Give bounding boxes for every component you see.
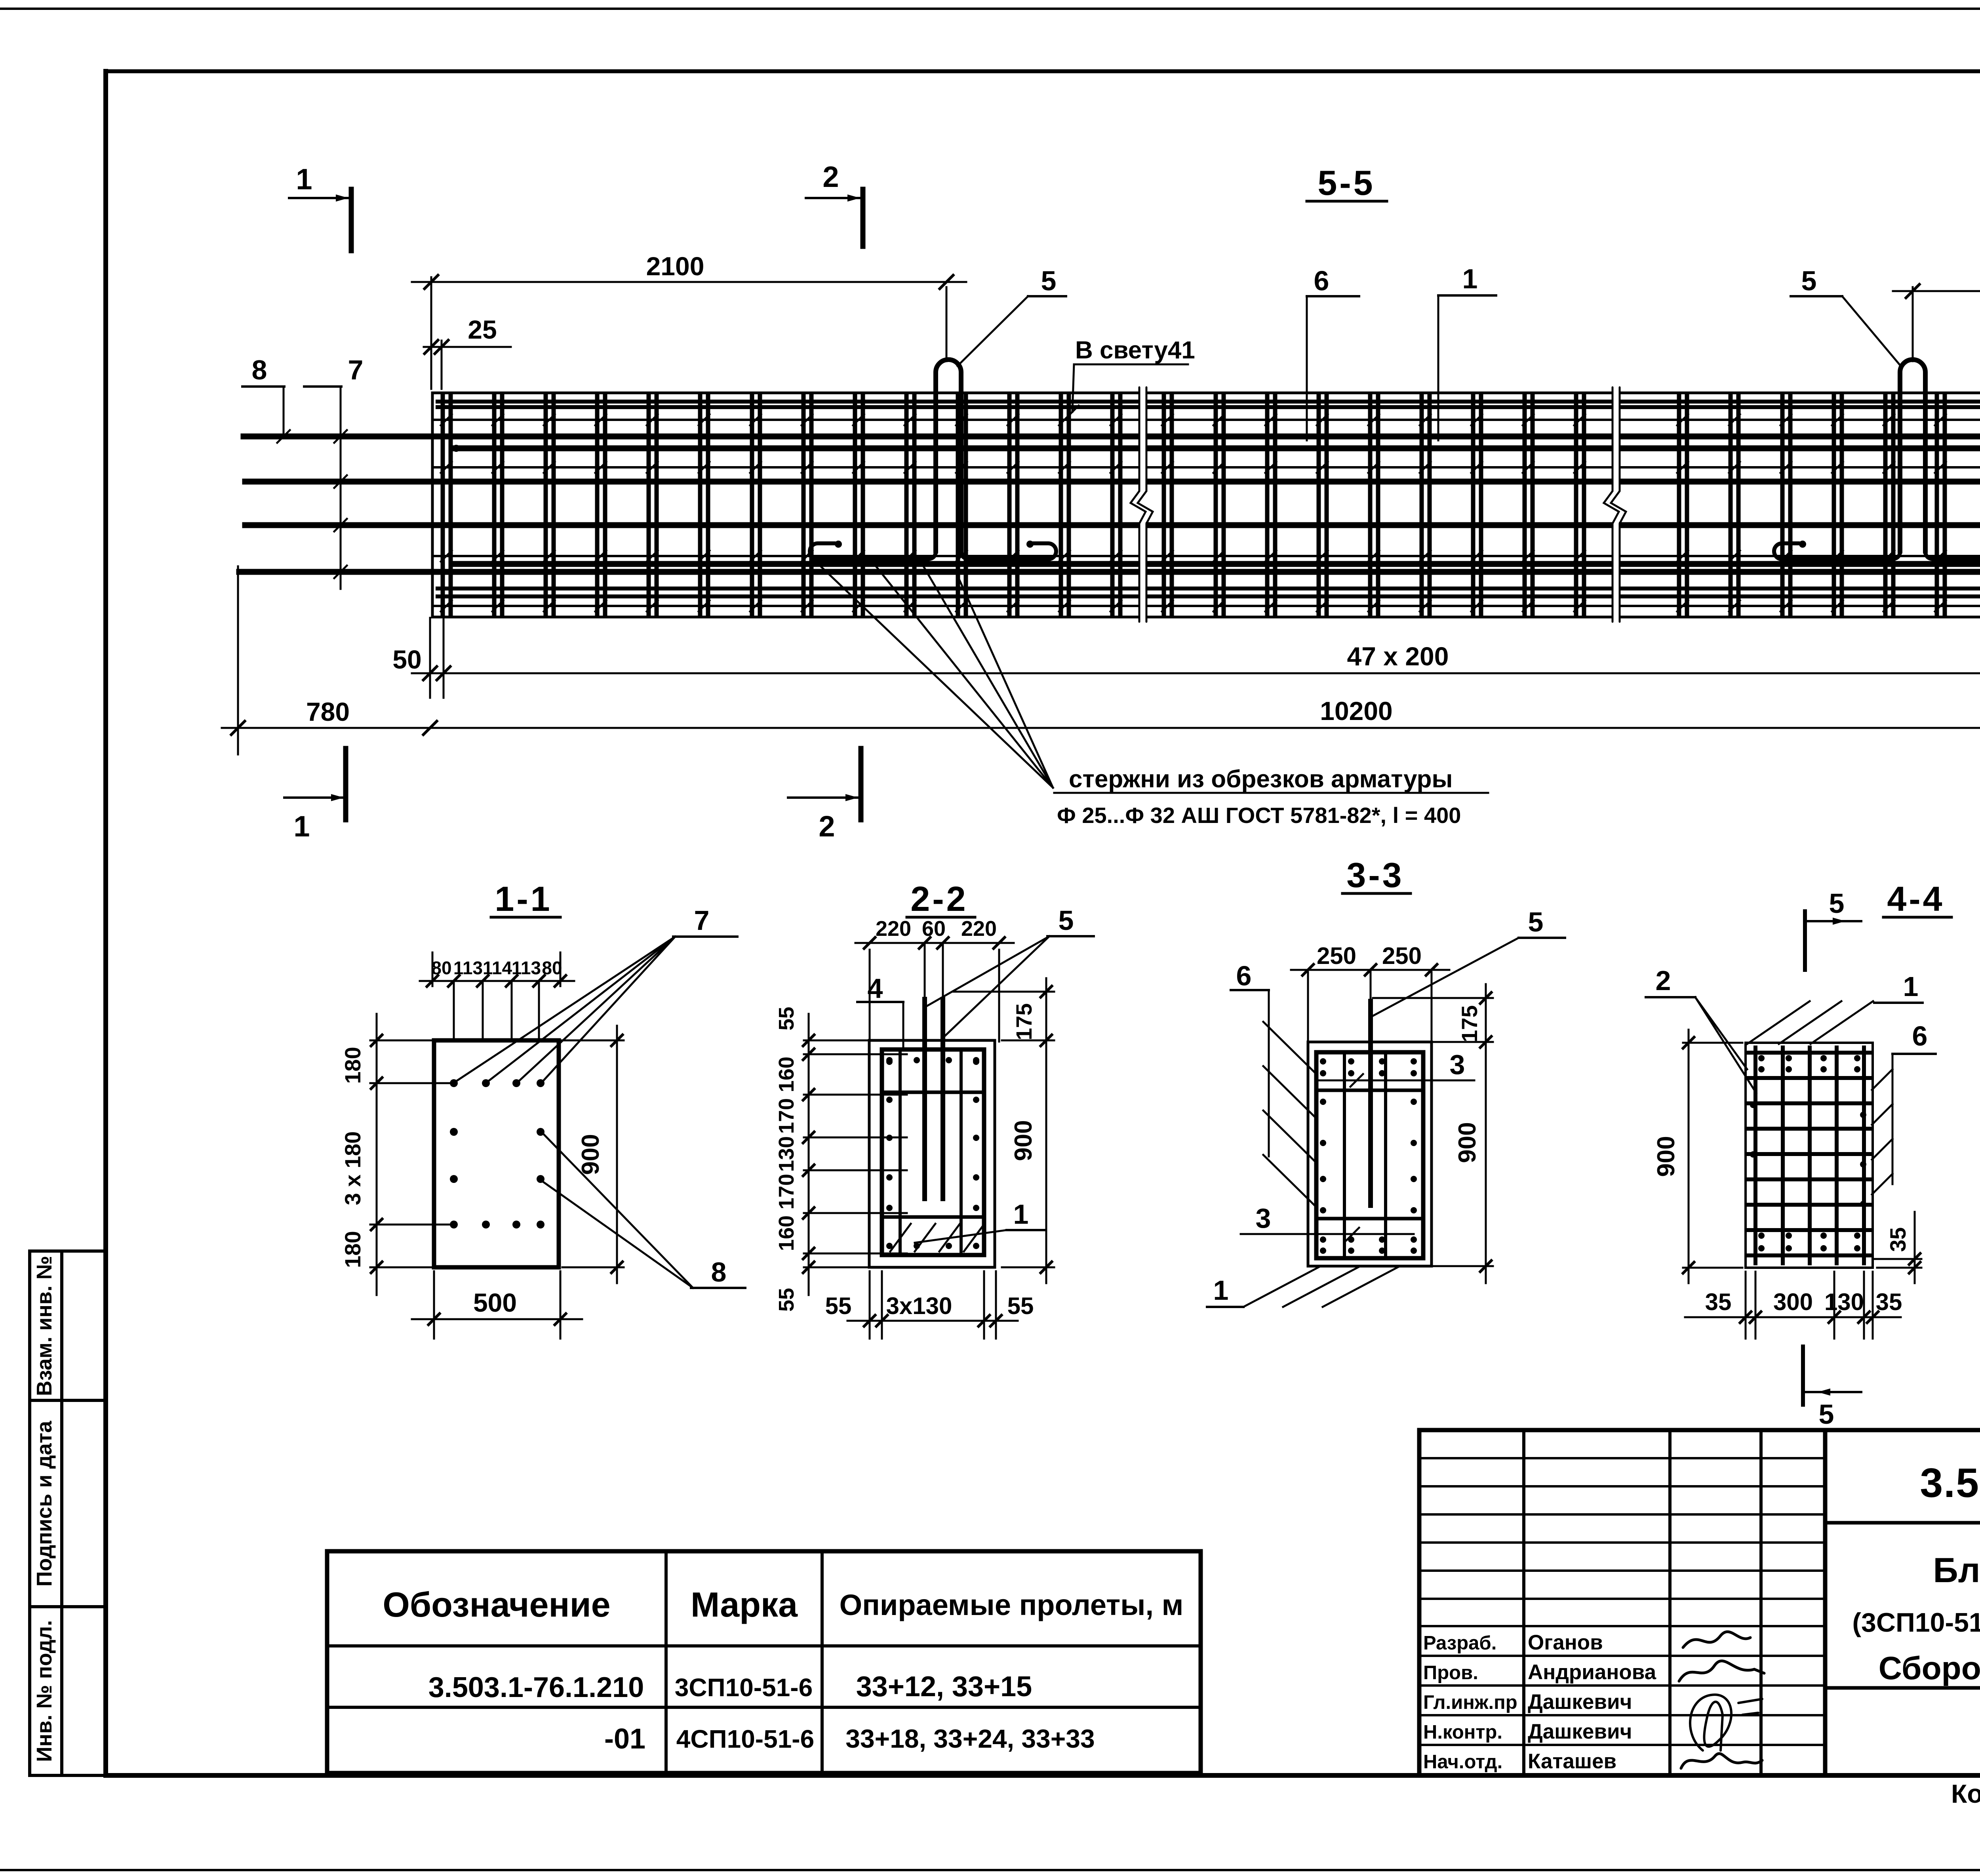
svg-text:220: 220 — [961, 917, 997, 941]
svg-text:(3СП10-51-6 и 4СП10-51-6): (3СП10-51-6 и 4СП10-51-6) — [1852, 1607, 1980, 1638]
svg-text:33+12, 33+15: 33+12, 33+15 — [856, 1671, 1032, 1703]
svg-text:Копировал: Копировал — [1951, 1779, 1980, 1808]
svg-text:5: 5 — [1829, 888, 1845, 919]
svg-text:3.503.1-76.1.210 СБ: 3.503.1-76.1.210 СБ — [1920, 1460, 1980, 1506]
svg-text:250: 250 — [1317, 943, 1356, 969]
svg-text:1: 1 — [293, 810, 310, 843]
svg-text:35: 35 — [1876, 1289, 1902, 1315]
svg-text:1: 1 — [1903, 971, 1919, 1002]
svg-text:Н.контр.: Н.контр. — [1423, 1722, 1502, 1743]
svg-text:900: 900 — [1010, 1120, 1037, 1161]
svg-text:130: 130 — [775, 1136, 798, 1172]
svg-text:Взам. инв. №: Взам. инв. № — [32, 1256, 56, 1396]
svg-text:6: 6 — [1314, 265, 1329, 296]
svg-text:Обозначение: Обозначение — [383, 1585, 610, 1624]
svg-text:113: 113 — [453, 958, 483, 978]
svg-text:Опираемые пролеты, м: Опираемые пролеты, м — [840, 1588, 1184, 1621]
svg-text:5: 5 — [1059, 905, 1074, 936]
svg-text:900: 900 — [1454, 1122, 1481, 1163]
svg-text:8: 8 — [711, 1257, 727, 1287]
svg-text:2: 2 — [822, 160, 839, 193]
svg-text:80: 80 — [431, 958, 451, 978]
svg-text:1: 1 — [296, 163, 312, 196]
svg-text:3-3: 3-3 — [1346, 855, 1404, 895]
svg-text:113: 113 — [512, 958, 541, 978]
svg-text:3.503.1-76.1.210: 3.503.1-76.1.210 — [428, 1672, 644, 1703]
svg-text:170: 170 — [775, 1174, 798, 1209]
svg-text:175: 175 — [1457, 1005, 1482, 1042]
svg-text:Разраб.: Разраб. — [1423, 1632, 1496, 1654]
svg-text:3: 3 — [1256, 1203, 1271, 1234]
svg-text:В свету41: В свету41 — [1075, 337, 1195, 364]
svg-text:2: 2 — [819, 810, 835, 843]
svg-text:25: 25 — [468, 315, 497, 344]
svg-text:130: 130 — [1824, 1289, 1864, 1315]
svg-text:170: 170 — [775, 1098, 798, 1134]
svg-text:Блок стойки: Блок стойки — [1933, 1550, 1980, 1590]
svg-text:1: 1 — [1013, 1199, 1029, 1230]
svg-text:220: 220 — [876, 917, 911, 941]
svg-text:180: 180 — [340, 1231, 365, 1268]
svg-text:5-5: 5-5 — [1317, 163, 1375, 202]
svg-text:3 x 180: 3 x 180 — [340, 1131, 365, 1206]
svg-text:Нач.отд.: Нач.отд. — [1423, 1751, 1502, 1773]
svg-text:55: 55 — [1007, 1293, 1034, 1319]
svg-text:900: 900 — [577, 1134, 604, 1175]
svg-text:35: 35 — [1885, 1227, 1910, 1252]
svg-text:5: 5 — [1528, 907, 1544, 937]
svg-text:8: 8 — [252, 354, 267, 385]
svg-text:10200: 10200 — [1320, 696, 1393, 726]
svg-text:3x130: 3x130 — [886, 1293, 952, 1319]
svg-text:300: 300 — [1773, 1289, 1813, 1315]
svg-text:55: 55 — [825, 1293, 852, 1319]
svg-text:3СП10-51-6: 3СП10-51-6 — [675, 1673, 813, 1702]
svg-text:Сборочный чертеж: Сборочный чертеж — [1879, 1650, 1980, 1686]
svg-text:500: 500 — [473, 1288, 517, 1317]
svg-text:2: 2 — [1656, 965, 1671, 996]
svg-text:2-2: 2-2 — [910, 879, 968, 918]
svg-text:160: 160 — [775, 1057, 798, 1092]
svg-text:1: 1 — [1462, 263, 1478, 294]
svg-text:2100: 2100 — [646, 251, 704, 281]
svg-text:7: 7 — [348, 354, 364, 385]
svg-text:60: 60 — [922, 917, 946, 941]
svg-text:33+18, 33+24, 33+33: 33+18, 33+24, 33+33 — [845, 1724, 1095, 1753]
svg-text:Инв. № подл.: Инв. № подл. — [32, 1620, 56, 1762]
svg-text:180: 180 — [340, 1047, 365, 1084]
svg-text:5: 5 — [1041, 265, 1057, 296]
svg-text:6: 6 — [1912, 1021, 1928, 1051]
svg-text:4: 4 — [868, 973, 883, 1004]
svg-text:114: 114 — [483, 958, 512, 978]
svg-text:160: 160 — [775, 1215, 798, 1251]
svg-text:Оганов: Оганов — [1528, 1631, 1603, 1654]
svg-text:Подпись и дата: Подпись и дата — [32, 1421, 56, 1587]
svg-text:Марка: Марка — [691, 1585, 798, 1624]
svg-text:6: 6 — [1236, 960, 1252, 991]
svg-text:4СП10-51-6: 4СП10-51-6 — [676, 1725, 814, 1753]
svg-text:1: 1 — [1213, 1275, 1229, 1306]
svg-text:5: 5 — [1801, 265, 1817, 296]
svg-text:55: 55 — [775, 1007, 798, 1030]
svg-text:Гл.инж.пр: Гл.инж.пр — [1423, 1692, 1517, 1713]
svg-text:50: 50 — [392, 645, 421, 674]
svg-text:Дашкевич: Дашкевич — [1528, 1720, 1632, 1743]
svg-text:3: 3 — [1450, 1049, 1465, 1080]
svg-text:стержни из обрезков арматур: стержни из обрезков арматуры — [1069, 766, 1453, 793]
svg-text:35: 35 — [1705, 1289, 1732, 1315]
svg-text:780: 780 — [306, 697, 350, 726]
svg-text:Пров.: Пров. — [1423, 1662, 1478, 1684]
svg-text:Дашкевич: Дашкевич — [1528, 1690, 1632, 1714]
svg-text:4-4: 4-4 — [1887, 879, 1944, 918]
svg-text:900: 900 — [1653, 1136, 1680, 1177]
svg-text:Андрианова: Андрианова — [1528, 1661, 1656, 1684]
svg-text:7: 7 — [694, 905, 710, 936]
svg-text:Ф 25...Ф 32 АШ ГОСТ 5781-82*,: Ф 25...Ф 32 АШ ГОСТ 5781-82*, l = 400 — [1057, 803, 1461, 828]
svg-text:175: 175 — [1011, 1003, 1036, 1040]
svg-text:47 x 200: 47 x 200 — [1347, 642, 1449, 671]
svg-text:5: 5 — [1819, 1399, 1834, 1430]
svg-text:55: 55 — [775, 1288, 798, 1312]
svg-text:80: 80 — [542, 958, 562, 978]
svg-text:1-1: 1-1 — [495, 879, 552, 918]
svg-text:250: 250 — [1382, 943, 1422, 969]
svg-text:-01: -01 — [604, 1723, 645, 1755]
svg-text:Каташев: Каташев — [1528, 1750, 1616, 1773]
